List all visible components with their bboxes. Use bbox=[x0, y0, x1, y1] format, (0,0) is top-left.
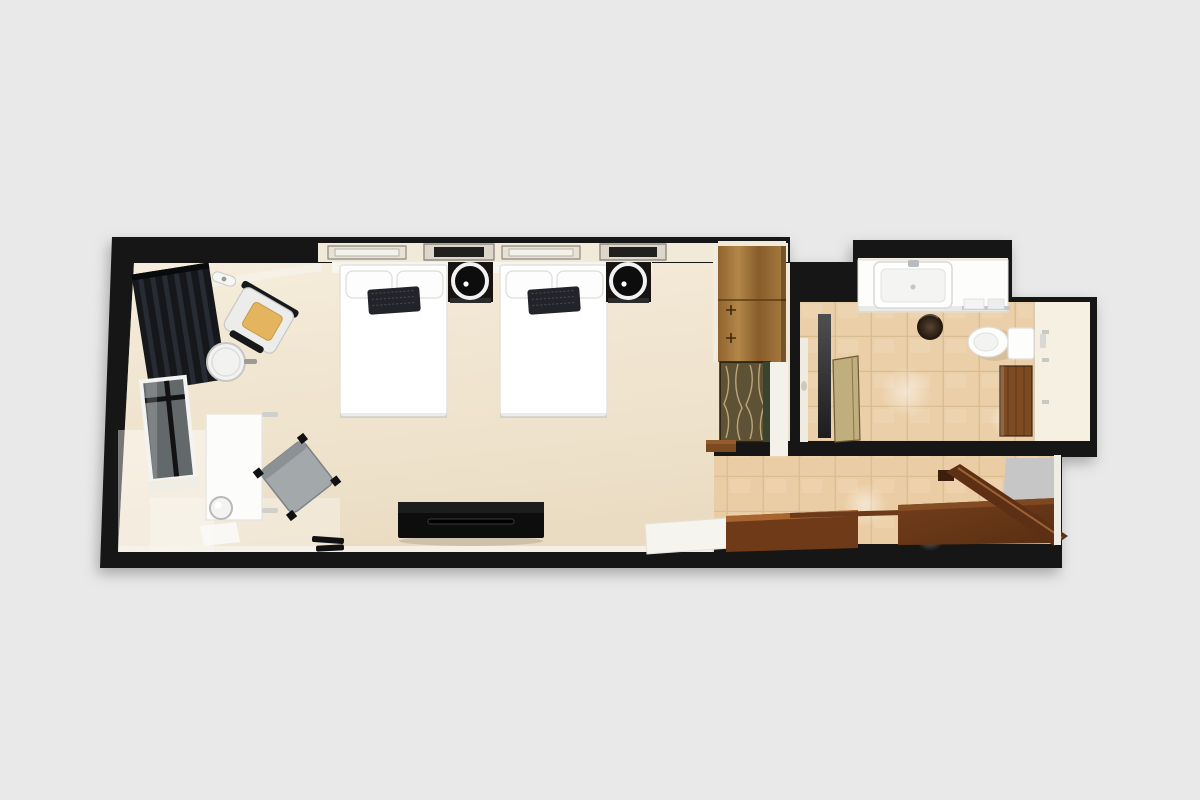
wall-cap-top bbox=[706, 440, 736, 444]
vanity bbox=[858, 260, 1008, 312]
round-sconce-lamp bbox=[453, 264, 487, 298]
shower-fixture bbox=[1042, 330, 1049, 334]
round-sconce-lamp bbox=[611, 264, 645, 298]
baseboard-light bbox=[120, 546, 712, 552]
desk-mat bbox=[200, 522, 240, 546]
shower-zone bbox=[1034, 302, 1090, 441]
bath-storage-cabinet bbox=[1000, 366, 1032, 436]
toilet bbox=[968, 327, 1046, 361]
shower-fixture bbox=[1042, 400, 1049, 404]
console-top-face bbox=[398, 502, 544, 513]
speaker-grille bbox=[434, 247, 484, 257]
door-frame bbox=[1054, 455, 1061, 545]
wardrobe-grain bbox=[718, 246, 786, 362]
flush-plate bbox=[1040, 334, 1046, 348]
shower-door bbox=[833, 356, 860, 442]
wardrobe bbox=[718, 241, 786, 362]
faucet bbox=[908, 260, 919, 267]
lamp-glow-dot bbox=[463, 281, 468, 286]
floor-plan-canvas bbox=[0, 0, 1200, 800]
decor-panel-green-edge bbox=[763, 362, 770, 442]
wardrobe-edge-shadow bbox=[781, 246, 786, 362]
toilet-tank bbox=[1008, 328, 1034, 359]
table-handle bbox=[244, 359, 257, 364]
toilet-seat bbox=[974, 333, 998, 351]
shower-glass-strip bbox=[818, 314, 831, 438]
shower-fixture bbox=[1042, 358, 1049, 362]
speaker-grille bbox=[609, 247, 657, 257]
tile-sheen bbox=[880, 366, 932, 418]
tv-console bbox=[398, 502, 544, 546]
bed-foot-shadow bbox=[340, 413, 447, 418]
lamp-glow-dot bbox=[621, 281, 626, 286]
desk-rail bbox=[262, 508, 278, 513]
floor-plan-svg bbox=[0, 0, 1200, 800]
nightstand-lamp-2 bbox=[606, 262, 651, 303]
white-step bbox=[645, 518, 730, 554]
console-handle bbox=[428, 519, 514, 524]
cabinet-highlight bbox=[1000, 366, 1004, 436]
kettle-highlight bbox=[215, 502, 222, 509]
twin-bed-1 bbox=[340, 265, 447, 418]
desk-rail bbox=[262, 412, 278, 417]
twin-bed-2 bbox=[500, 265, 607, 418]
bed-foot-shadow bbox=[500, 413, 607, 418]
wall-stub-face bbox=[770, 362, 788, 456]
bath-handle bbox=[801, 381, 807, 391]
nightstand-lamp-1 bbox=[448, 262, 493, 303]
light-panel-inner bbox=[509, 249, 573, 256]
kettle bbox=[210, 497, 232, 519]
light-panel-inner bbox=[335, 249, 399, 256]
sink-drain bbox=[911, 285, 916, 290]
